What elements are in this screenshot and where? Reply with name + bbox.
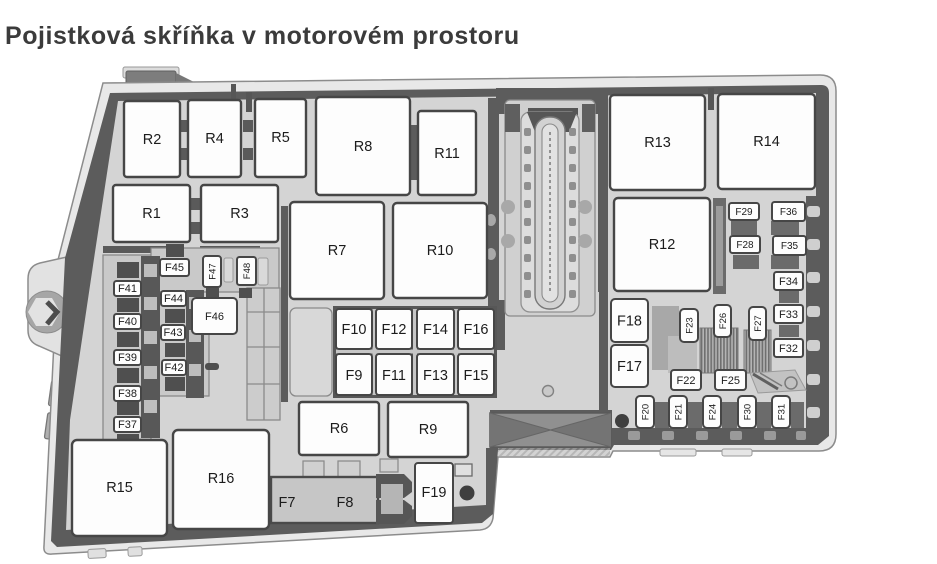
svg-text:F11: F11: [382, 368, 406, 384]
svg-text:R14: R14: [753, 134, 780, 150]
svg-text:R4: R4: [205, 131, 224, 147]
svg-text:F15: F15: [464, 368, 489, 384]
svg-text:F9: F9: [346, 368, 363, 384]
svg-text:R16: R16: [208, 471, 235, 487]
svg-text:F7: F7: [279, 495, 296, 511]
svg-text:R8: R8: [354, 139, 373, 155]
svg-text:F17: F17: [617, 359, 642, 375]
svg-text:F23: F23: [685, 317, 696, 333]
svg-text:F38: F38: [118, 388, 137, 400]
svg-text:F37: F37: [118, 419, 137, 431]
svg-text:R5: R5: [271, 130, 290, 146]
svg-text:R6: R6: [330, 421, 349, 437]
svg-text:R9: R9: [419, 422, 438, 438]
svg-text:F45: F45: [165, 262, 184, 274]
svg-text:R12: R12: [649, 237, 676, 253]
svg-text:F28: F28: [736, 240, 754, 251]
svg-text:F46: F46: [205, 311, 224, 323]
svg-text:F26: F26: [718, 313, 729, 329]
svg-text:F12: F12: [382, 322, 407, 338]
svg-text:F18: F18: [617, 314, 642, 330]
svg-text:F14: F14: [423, 322, 448, 338]
svg-text:F31: F31: [777, 404, 788, 420]
svg-text:F8: F8: [337, 495, 354, 511]
svg-text:F22: F22: [677, 375, 696, 387]
svg-text:F48: F48: [242, 263, 253, 279]
svg-text:R13: R13: [644, 135, 671, 151]
svg-text:R1: R1: [142, 206, 161, 222]
svg-text:F47: F47: [208, 263, 219, 279]
svg-text:F10: F10: [342, 322, 367, 338]
svg-text:F13: F13: [423, 368, 448, 384]
svg-text:F44: F44: [164, 293, 183, 305]
svg-text:F25: F25: [721, 375, 740, 387]
svg-text:F36: F36: [780, 207, 798, 218]
svg-text:F43: F43: [164, 327, 183, 339]
svg-text:F35: F35: [781, 241, 799, 252]
svg-text:F34: F34: [779, 276, 798, 288]
svg-text:R11: R11: [434, 146, 460, 162]
svg-text:R15: R15: [106, 480, 133, 496]
svg-text:F20: F20: [641, 404, 652, 420]
svg-text:Pojistková skříňka v motorovém: Pojistková skříňka v motorovém prostoru: [5, 22, 520, 50]
svg-text:F42: F42: [165, 362, 184, 374]
svg-text:R7: R7: [328, 243, 347, 259]
svg-text:F29: F29: [735, 207, 753, 218]
svg-text:F41: F41: [118, 283, 137, 295]
svg-text:F21: F21: [674, 404, 685, 420]
svg-text:F19: F19: [422, 485, 447, 501]
svg-text:F16: F16: [464, 322, 489, 338]
svg-text:F30: F30: [743, 404, 754, 420]
svg-text:F32: F32: [779, 343, 798, 355]
svg-text:F39: F39: [118, 352, 137, 364]
svg-text:R10: R10: [427, 243, 454, 259]
svg-text:F40: F40: [118, 316, 137, 328]
svg-text:F24: F24: [708, 404, 719, 420]
svg-text:R3: R3: [230, 206, 249, 222]
svg-text:F33: F33: [779, 309, 798, 321]
svg-text:F27: F27: [753, 315, 764, 331]
svg-text:R2: R2: [143, 132, 162, 148]
